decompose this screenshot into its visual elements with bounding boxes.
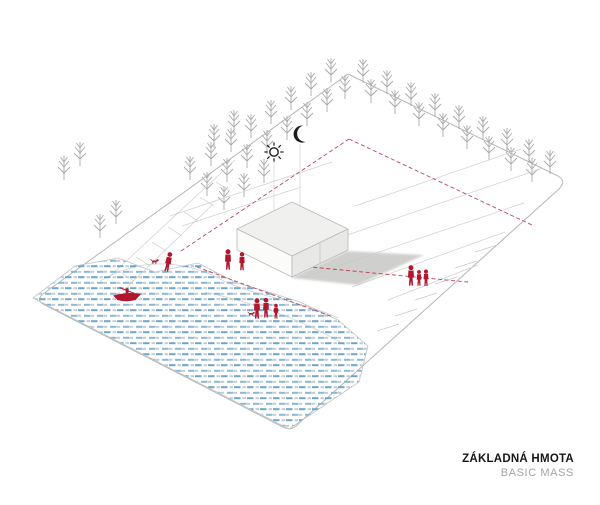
caption: ZÁKLADNÁ HMOTA BASIC MASS <box>462 452 574 481</box>
sun-ray <box>267 145 269 147</box>
person-head <box>226 249 231 254</box>
slope-hatch-tick <box>395 309 417 316</box>
caption-subtitle: BASIC MASS <box>462 467 574 481</box>
slope-hatch-tick <box>184 212 198 221</box>
person-body <box>225 255 231 270</box>
tree <box>221 158 233 182</box>
tree <box>285 86 297 110</box>
tree <box>245 114 257 138</box>
tree <box>483 136 495 160</box>
slope-hatch-tick <box>216 182 230 191</box>
person-head <box>240 252 244 256</box>
tree <box>241 144 253 168</box>
ground-contour-line <box>330 168 543 241</box>
slope-hatch-tick <box>136 257 150 266</box>
ground-contour-line <box>170 162 332 216</box>
person <box>424 269 429 285</box>
tree <box>201 172 213 196</box>
tree <box>238 173 250 197</box>
moon-icon <box>294 125 306 142</box>
tree <box>205 142 217 166</box>
people-group-pair-standing <box>225 249 245 270</box>
person-head <box>409 265 414 270</box>
person <box>408 265 414 285</box>
ground-contour-line <box>355 149 521 206</box>
dog-head <box>253 312 255 314</box>
sun-ray <box>267 156 269 158</box>
dog-body <box>152 261 157 263</box>
dog-leg <box>153 262 154 264</box>
tree <box>258 159 270 183</box>
sight-line-dashed <box>349 139 532 225</box>
person-head <box>274 304 278 308</box>
site-diagram <box>0 0 600 505</box>
diagram-canvas: ZÁKLADNÁ HMOTA BASIC MASS <box>0 0 600 505</box>
caption-title: ZÁKLADNÁ HMOTA <box>462 452 574 466</box>
slope-hatch-tick <box>415 293 437 300</box>
tree <box>413 102 425 126</box>
tree <box>325 58 337 82</box>
slope-hatch-tick <box>200 197 214 206</box>
ground-contour-line <box>388 265 478 300</box>
tree <box>461 125 473 149</box>
tree <box>228 110 240 134</box>
tree <box>110 200 122 224</box>
dog-body <box>249 313 253 315</box>
person-head <box>424 269 428 273</box>
tree <box>265 100 277 124</box>
person-head <box>264 298 269 303</box>
sun-icon <box>264 142 283 161</box>
dog-tail <box>151 259 152 260</box>
dog-head <box>156 259 158 261</box>
tree <box>389 90 401 114</box>
tree <box>208 124 220 148</box>
dog-leg <box>252 314 253 316</box>
slope-hatch-tick <box>152 242 166 251</box>
person-body <box>424 274 429 286</box>
people-group-trio-east <box>408 265 428 286</box>
person-body <box>417 274 422 286</box>
slope-hatch-tick <box>377 324 399 331</box>
dog-leg <box>249 314 250 316</box>
ground-contour-line <box>108 160 235 278</box>
person-body <box>408 271 414 286</box>
tree <box>184 156 196 180</box>
tree <box>58 156 70 180</box>
person <box>239 252 244 270</box>
person-head <box>417 270 421 274</box>
sun-ray <box>278 156 280 158</box>
tree <box>225 128 237 152</box>
dog-leg <box>156 262 157 264</box>
person-body <box>239 257 244 270</box>
person-head <box>167 252 173 258</box>
person <box>225 249 231 269</box>
boat-person-body <box>126 291 129 296</box>
tree <box>74 142 86 166</box>
tree <box>94 214 106 238</box>
tree <box>301 102 313 126</box>
tree <box>305 72 317 96</box>
sun-disc <box>270 148 278 156</box>
person <box>417 270 422 286</box>
tree <box>477 116 489 140</box>
tree <box>429 93 441 117</box>
sun-ray <box>278 145 280 147</box>
person-head <box>255 298 260 303</box>
slope-hatch-tick <box>168 227 182 236</box>
water-area <box>33 258 368 429</box>
tree <box>281 116 293 140</box>
tree <box>437 113 449 137</box>
